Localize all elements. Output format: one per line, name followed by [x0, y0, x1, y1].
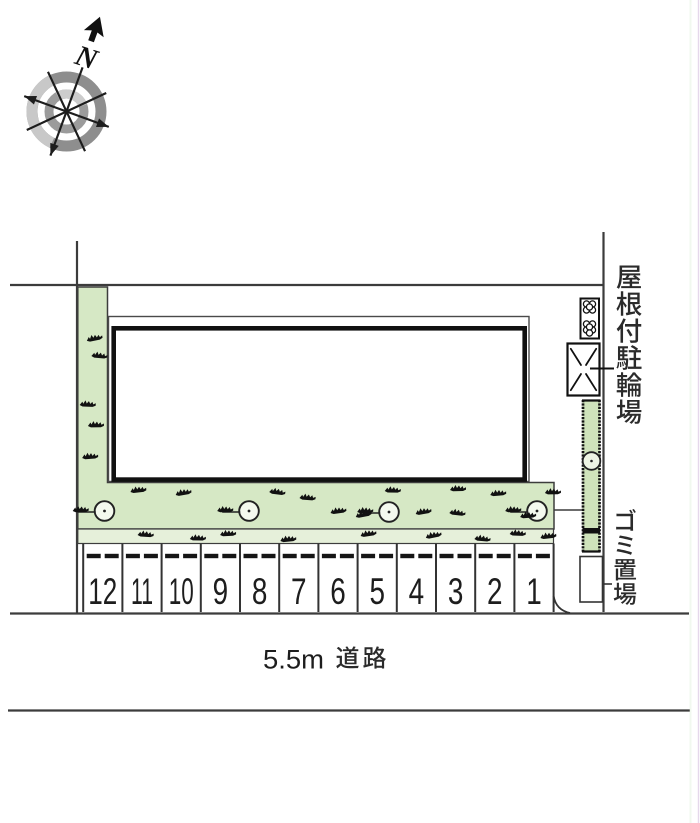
svg-text:5.5m: 5.5m [263, 645, 324, 675]
svg-text:12: 12 [88, 571, 117, 612]
svg-text:7: 7 [291, 571, 307, 612]
svg-text:4: 4 [409, 571, 425, 612]
svg-text:6: 6 [330, 571, 346, 612]
svg-text:10: 10 [169, 571, 194, 612]
svg-text:3: 3 [448, 571, 464, 612]
svg-text:8: 8 [252, 571, 268, 612]
svg-text:2: 2 [487, 571, 503, 612]
svg-text:5: 5 [369, 571, 385, 612]
svg-text:11: 11 [131, 571, 153, 612]
svg-text:9: 9 [213, 571, 229, 612]
svg-text:1: 1 [526, 571, 542, 612]
